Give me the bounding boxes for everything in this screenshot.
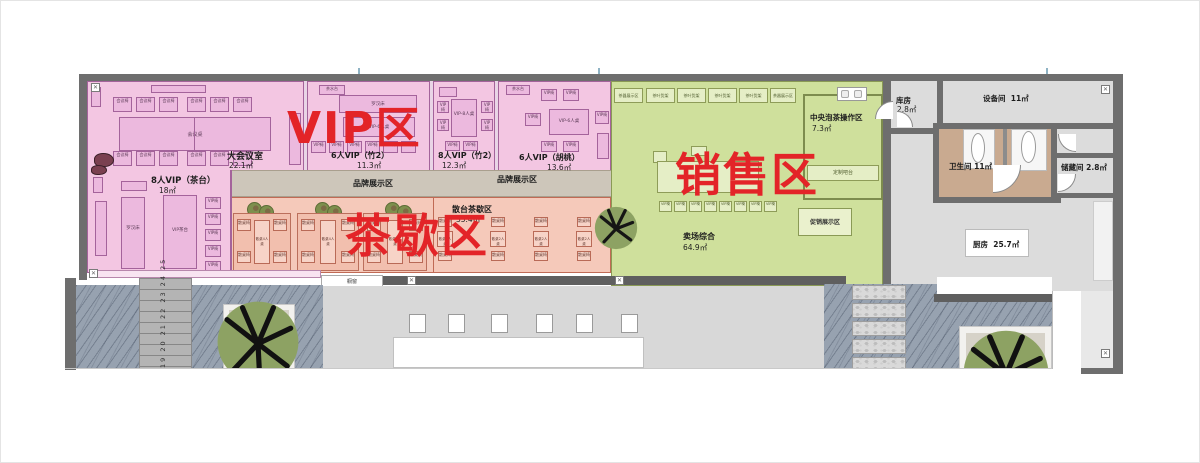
cabinet-box (121, 181, 147, 191)
room-label-storage: 储藏间 2.8㎡ (1061, 162, 1107, 173)
landscape-hatch (76, 285, 139, 369)
wall-marker: ✕ (615, 276, 624, 285)
shelf-box: 茶器展示区 (770, 88, 796, 103)
corridor (1052, 291, 1081, 369)
room-area-central-tea: 7.3㎡ (812, 123, 831, 134)
chair-box: 散桌椅 (491, 251, 505, 261)
chair-box: 散桌椅 (301, 251, 315, 263)
storage-area: 2.8㎡ (1086, 163, 1107, 172)
table-box: VIP茶台 (163, 195, 197, 269)
decor-stone (91, 165, 107, 175)
chair-box: 散桌椅 (577, 251, 591, 261)
chair-box: VIP椅 (481, 119, 493, 131)
chair-box: VIP椅 (674, 201, 687, 212)
plaza-column (409, 314, 426, 333)
chair-box: VIP椅 (437, 119, 449, 131)
wall-right (1113, 74, 1123, 374)
tree-left (215, 299, 301, 369)
chair-box: VIP椅 (749, 201, 762, 212)
wall-marker: ✕ (407, 276, 416, 285)
wall-marker: ✕ (89, 269, 98, 278)
chair-box: 会议椅 (159, 151, 178, 166)
site-edge (65, 368, 1052, 369)
chair-box: 散桌椅 (491, 217, 505, 227)
room-label-kitchen: 厨房 25.7㎡ (973, 239, 1019, 250)
table-box: 散桌2人桌 (490, 231, 506, 247)
room-area-vip8zhu: 12.3㎡ (442, 160, 466, 171)
toilet-fixture (971, 133, 985, 163)
zone-label-teabreak: 茶歇区 (345, 213, 489, 259)
chair-box: VIP椅 (595, 111, 609, 124)
table-box: 散桌4人桌 (320, 220, 336, 264)
stepping-stone (852, 303, 906, 318)
dimension-tick (598, 68, 600, 74)
room-label-sales-floor: 卖场综合 (683, 231, 715, 242)
plaza-column (536, 314, 553, 333)
shelf-box: 茶叶货架 (708, 88, 737, 103)
chair-box: 散桌椅 (273, 219, 287, 231)
dimension-tick (1046, 68, 1048, 74)
room-area-conference: 22.1㎡ (229, 160, 253, 171)
chair-box: VIP椅 (481, 101, 493, 113)
tree-icon (961, 328, 1051, 369)
shopfront-strip (89, 270, 321, 278)
chair-box: 散桌椅 (273, 251, 287, 263)
entrance-platform (393, 337, 644, 368)
toilet-fixture (1021, 131, 1036, 163)
kitchen-name: 厨房 (973, 240, 988, 249)
partition (429, 81, 434, 170)
tree-right (961, 328, 1051, 369)
kitchen-counter (1093, 201, 1113, 281)
wall-top (79, 74, 1123, 81)
table-box: VIP-8人桌 (451, 99, 477, 137)
chair-box: VIP椅 (689, 201, 702, 212)
shelf-box: 茶叶货架 (739, 88, 768, 103)
plaza-column (576, 314, 593, 333)
chair-box: 会议椅 (159, 97, 178, 112)
partition (230, 170, 232, 273)
brand-display-strip (231, 170, 611, 197)
chair-box: VIP椅 (541, 141, 557, 152)
sink-basin (854, 90, 862, 98)
room-label-equipment: 设备间 11㎡ (983, 93, 1029, 104)
table-divider (194, 118, 195, 150)
floor-plan-canvas: 会议椅 会议椅 会议椅 会议椅 会议椅 会议椅 会议桌 会议椅 会议椅 会议椅 … (0, 0, 1200, 463)
sink-basin (841, 90, 849, 98)
tree-icon (215, 299, 301, 369)
cabinet-box: 茶水台 (506, 85, 530, 95)
cabinet-box (95, 201, 107, 256)
chair-box: 散桌椅 (577, 217, 591, 227)
tree-small (593, 205, 639, 251)
chair-box: 会议椅 (136, 97, 155, 112)
kitchen-area: 25.7㎡ (993, 240, 1019, 249)
wall-washblock-right (1051, 123, 1057, 203)
washroom-area: 11㎡ (974, 162, 992, 171)
room-area-vip6walnut: 13.6㎡ (547, 162, 571, 173)
stepping-stone (852, 285, 906, 300)
zone-label-sales: 销售区 (675, 152, 819, 198)
chair-box: 会议椅 (113, 97, 132, 112)
chair-box: VIP椅 (563, 141, 579, 152)
chair-box: 散桌椅 (534, 251, 548, 261)
washroom-name: 卫生间 (949, 162, 972, 171)
chair-box: VIP椅 (719, 201, 732, 212)
chair-box: VIP椅 (541, 89, 557, 101)
bed-box: 罗汉床 (121, 197, 145, 269)
meeting-table: 会议桌 (119, 117, 271, 151)
cabinet-box (597, 133, 609, 159)
zone-label-vip: VIP区 (287, 107, 422, 151)
room-label-central-tea: 中央泡茶操作区 (810, 112, 863, 123)
wall-storage-top (1057, 153, 1113, 158)
stepping-stone (852, 321, 906, 336)
chair-box: VIP椅 (205, 229, 221, 241)
cabinet-box (439, 87, 457, 97)
shelf-box: 茶叶货架 (677, 88, 706, 103)
room-area-vip6zhu: 11.3㎡ (357, 160, 381, 171)
chair-box: VIP椅 (764, 201, 777, 212)
cabinet-box (151, 85, 206, 93)
chair-box: VIP椅 (205, 213, 221, 225)
chair-box: 散桌椅 (237, 251, 251, 263)
wall-left (79, 74, 87, 280)
wall-marker: ✕ (91, 83, 100, 92)
plaza-column (491, 314, 508, 333)
stepping-stone (852, 339, 906, 354)
wall-washblock-bottom (933, 197, 1061, 203)
table-box: 散桌2人桌 (576, 231, 592, 247)
chair-box: 散桌椅 (237, 219, 251, 231)
wall-left-lower (65, 278, 76, 370)
stall-divider (1003, 129, 1007, 165)
equipment-area: 11㎡ (1011, 94, 1029, 103)
chair-box: 会议椅 (210, 97, 229, 112)
chair-box: VIP椅 (734, 201, 747, 212)
chair-box: VIP椅 (205, 197, 221, 209)
shelf-box: 茶器展示区 (614, 88, 643, 103)
table-box: VIP-6人桌 (549, 109, 589, 135)
plaza-column (621, 314, 638, 333)
chair-box: 会议椅 (136, 151, 155, 166)
plaza-column (448, 314, 465, 333)
cabinet-box: 茶水台 (319, 85, 345, 95)
room-label-washroom: 卫生间 11㎡ (949, 161, 992, 172)
chair-box: VIP椅 (437, 101, 449, 113)
brand-display-label: 品牌展示区 (497, 174, 537, 185)
cabinet-box (93, 177, 103, 193)
chair-box: 会议椅 (233, 97, 252, 112)
chair-box: 会议椅 (187, 151, 206, 166)
shelf-box: 茶叶货架 (646, 88, 675, 103)
chair-box: VIP椅 (704, 201, 717, 212)
tree-icon (593, 205, 639, 251)
equipment-name: 设备间 (983, 94, 1006, 103)
dimension-tick (358, 68, 360, 74)
table-box: 散桌4人桌 (254, 220, 270, 264)
wall-marker: ✕ (1101, 349, 1110, 358)
wall-storage-bottom (1057, 193, 1113, 198)
table-box: 散桌2人桌 (533, 231, 549, 247)
chair-box: 会议椅 (187, 97, 206, 112)
storage-name: 储藏间 (1061, 163, 1084, 172)
room-area-sales-floor: 64.9㎡ (683, 242, 707, 253)
chair-box: VIP椅 (659, 201, 672, 212)
chair-box: VIP椅 (525, 113, 541, 126)
chair-box: VIP椅 (205, 245, 221, 257)
promo-display-box: 促销展示区 (798, 208, 852, 236)
chair-box: VIP椅 (563, 89, 579, 101)
brand-display-label: 品牌展示区 (353, 178, 393, 189)
chair-box: 会议椅 (113, 151, 132, 166)
stair-numbers: 19 20 21 22 23 24 25 (159, 280, 171, 368)
wall-bottom-right (1081, 367, 1123, 374)
wall-marker: ✕ (1101, 85, 1110, 94)
chair-box: 散桌椅 (301, 219, 315, 231)
chair-box: 散桌椅 (534, 217, 548, 227)
